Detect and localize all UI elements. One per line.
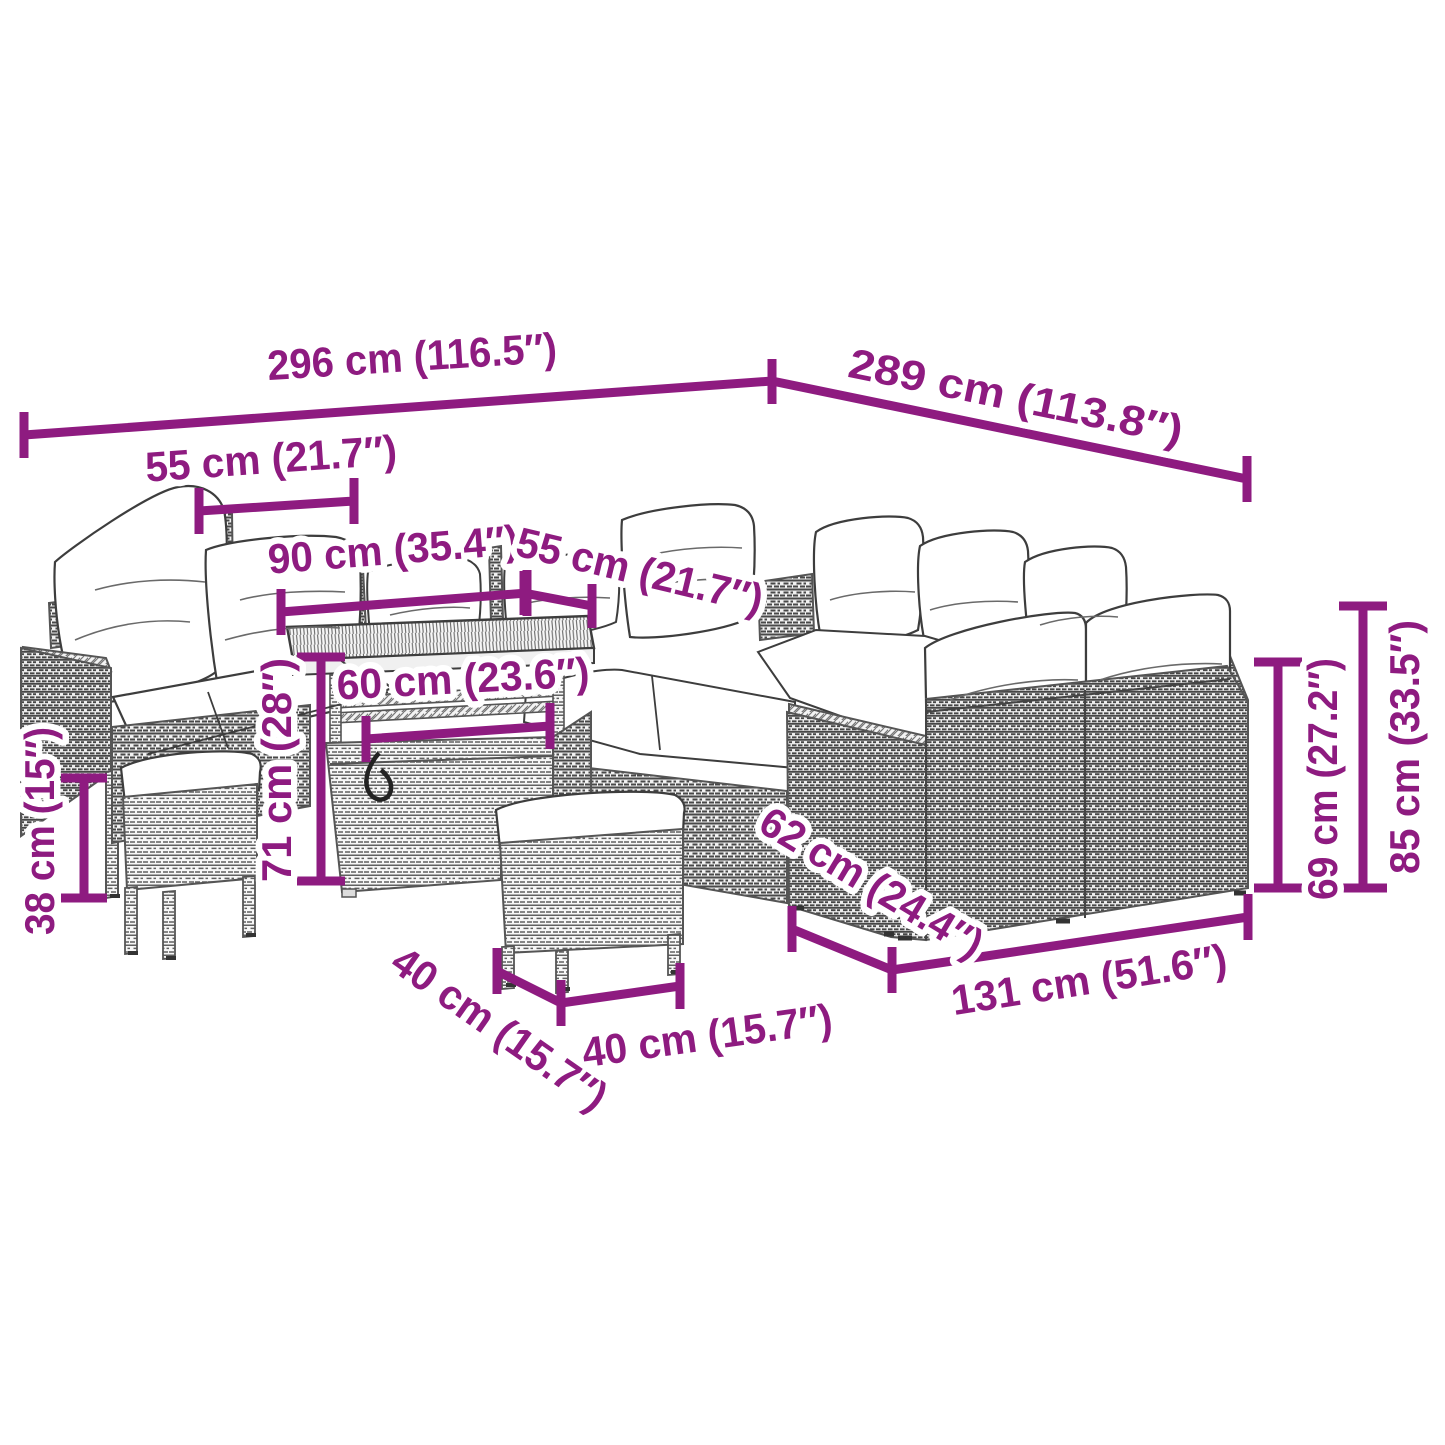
svg-text:38 cm (15″): 38 cm (15″): [16, 727, 63, 935]
svg-text:71 cm (28″): 71 cm (28″): [253, 658, 300, 882]
svg-text:85 cm (33.5″): 85 cm (33.5″): [1381, 620, 1428, 874]
svg-text:69 cm (27.2″): 69 cm (27.2″): [1299, 658, 1346, 900]
